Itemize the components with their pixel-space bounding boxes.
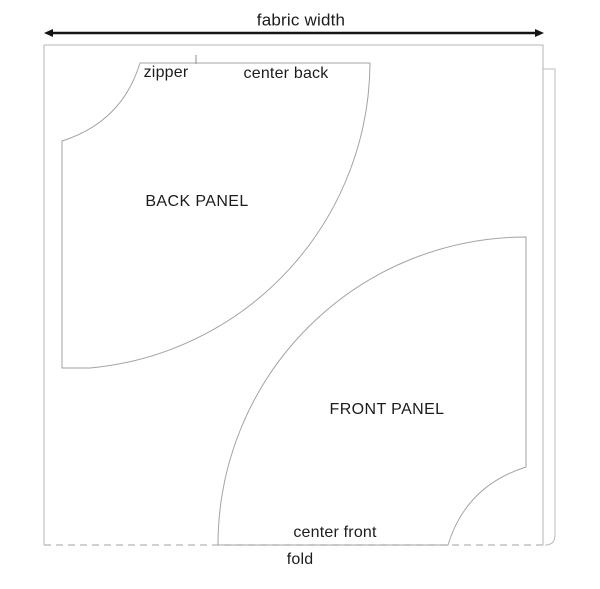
layout-linework — [0, 0, 600, 589]
center-back-label: center back — [244, 66, 329, 82]
back-panel-label: BACK PANEL — [145, 194, 248, 210]
fabric-outline — [44, 45, 543, 545]
fabric-width-arrow — [44, 29, 544, 37]
arrow-head-left-icon — [44, 29, 53, 37]
front-panel-label: FRONT PANEL — [330, 402, 445, 418]
arrow-head-right-icon — [535, 29, 544, 37]
front-panel-outline — [218, 237, 526, 545]
back-panel-outline — [62, 63, 370, 368]
pattern-layout-diagram: fabric width zipper center back BACK PAN… — [0, 0, 600, 589]
under-layer-edge — [543, 69, 555, 545]
fabric-width-label: fabric width — [257, 12, 345, 29]
center-front-label: center front — [293, 525, 376, 541]
zipper-label: zipper — [144, 65, 189, 81]
fold-label: fold — [287, 552, 314, 568]
